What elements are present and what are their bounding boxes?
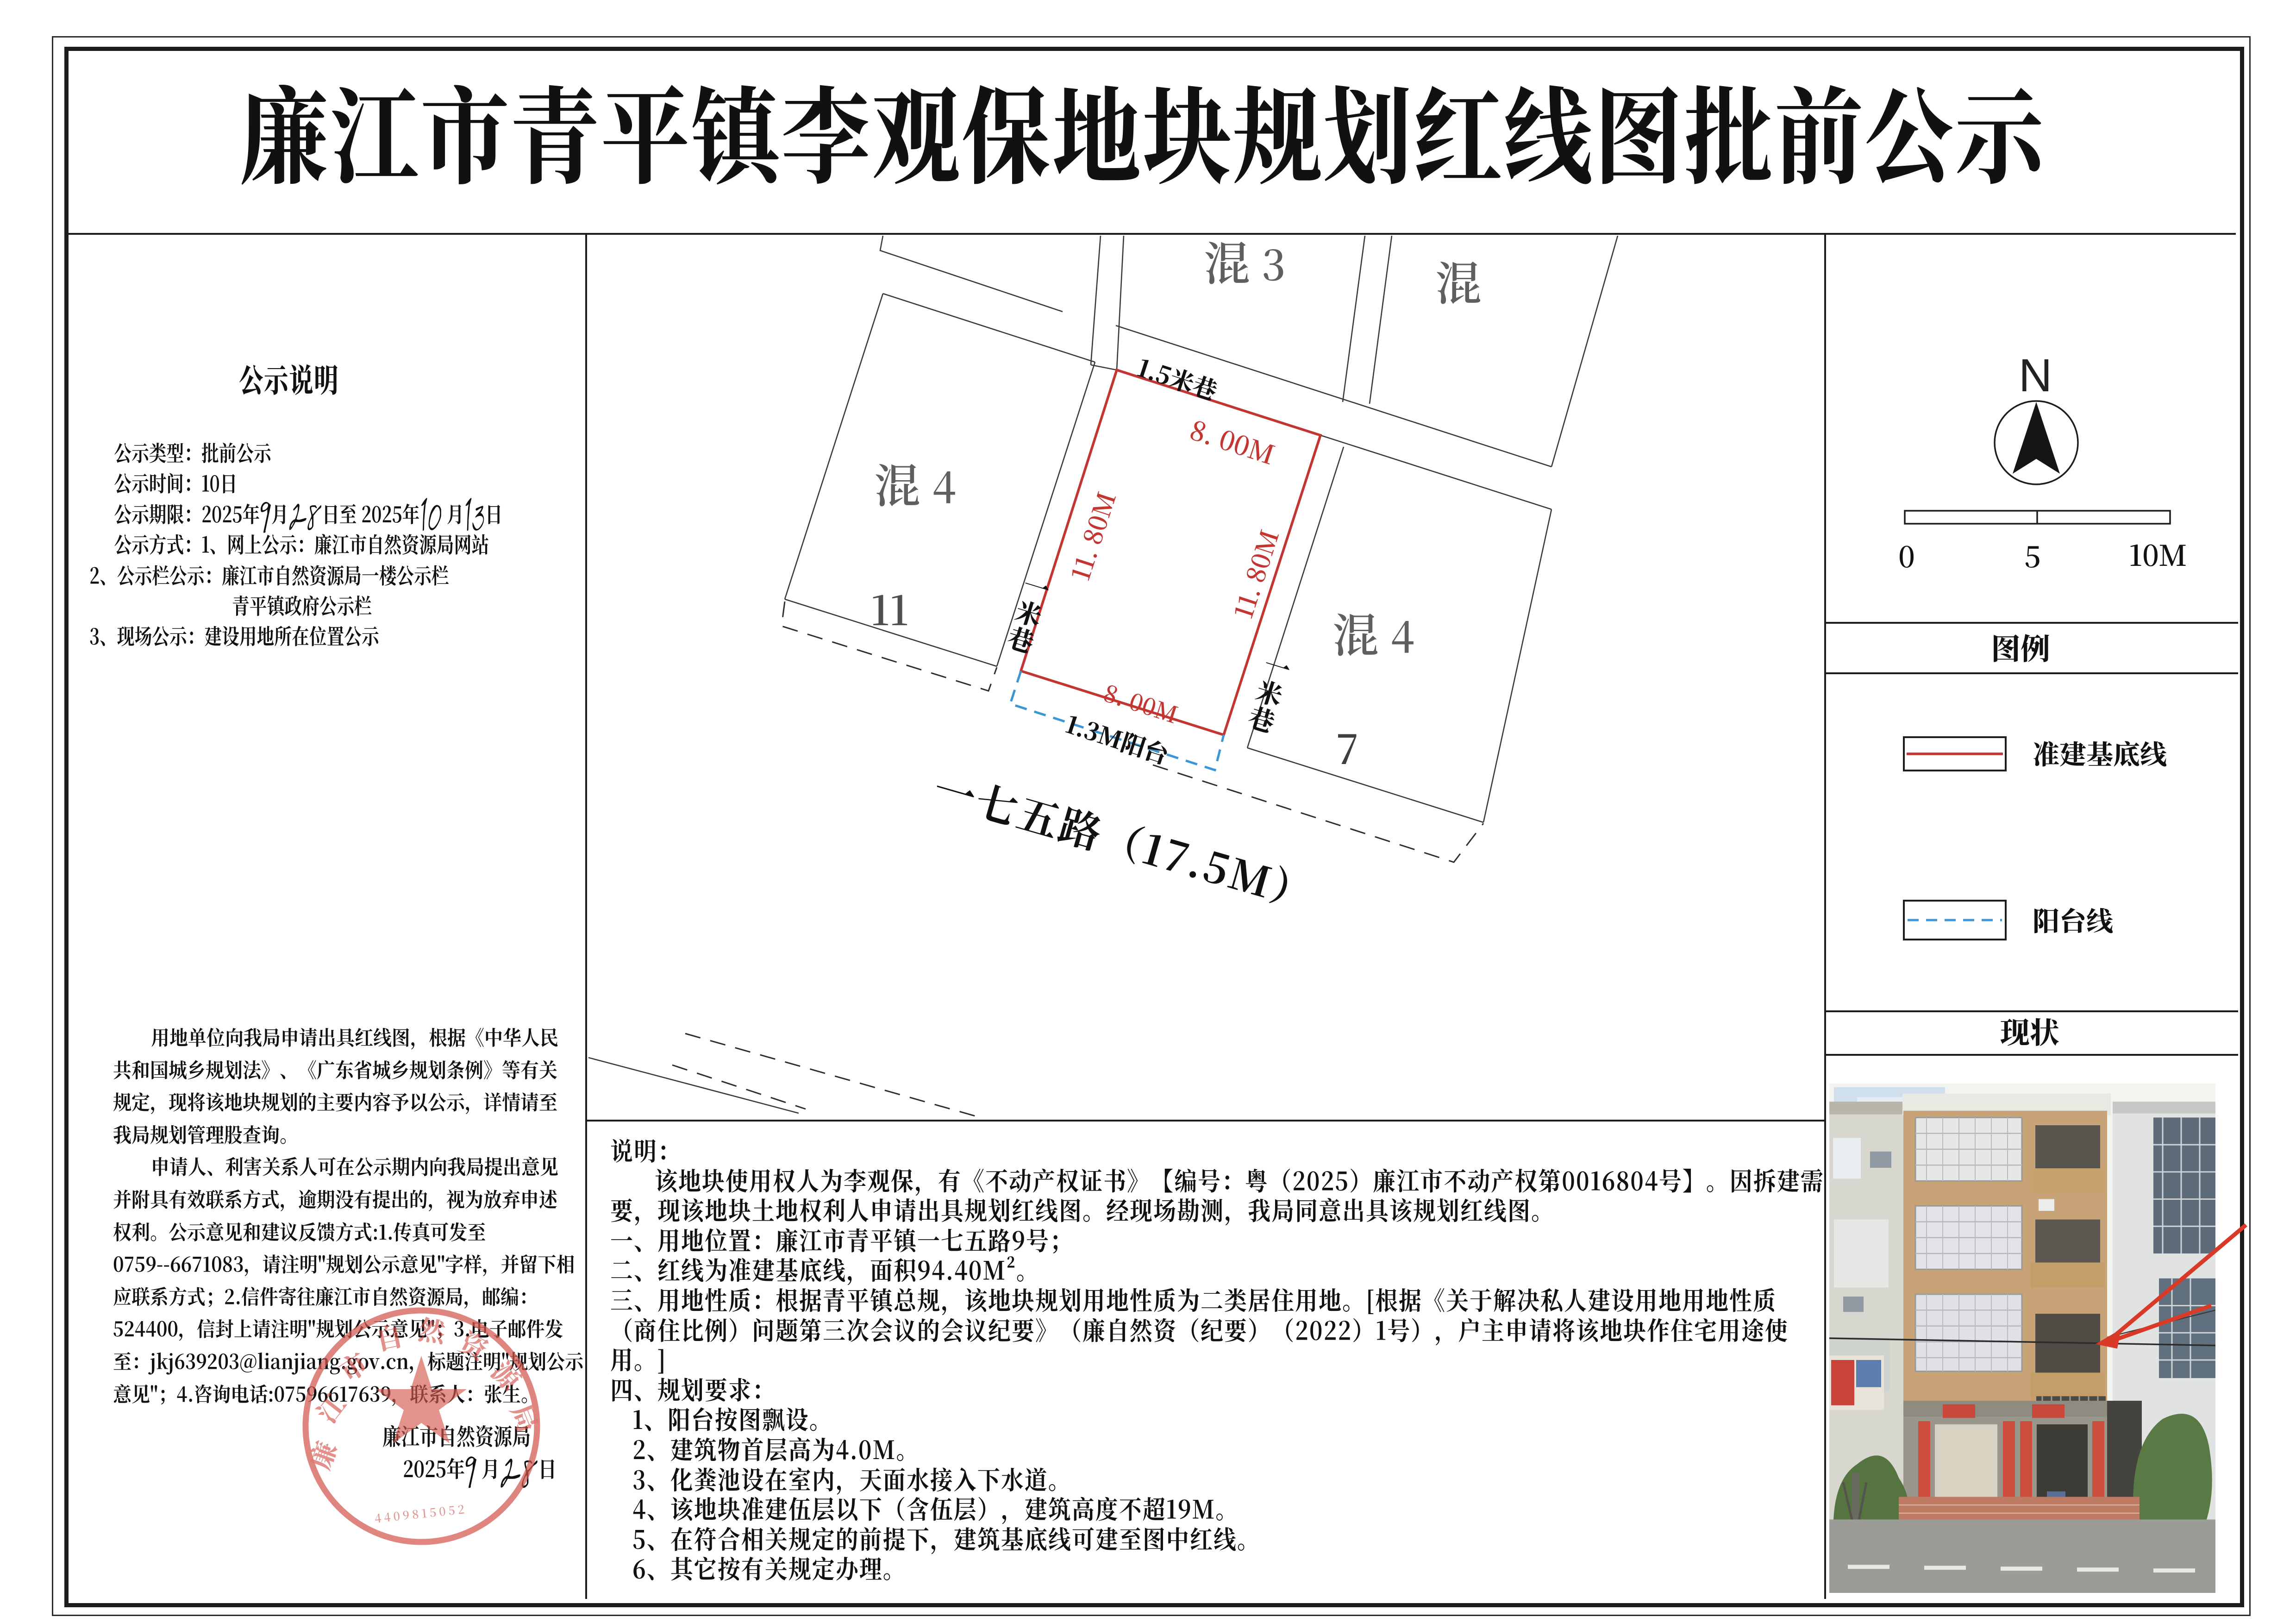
svg-text:N: N (2019, 350, 2052, 401)
svg-text:4409815052: 4409815052 (374, 1500, 468, 1527)
svg-text:阳台线: 阳台线 (2033, 900, 2113, 939)
svg-text:然: 然 (416, 1308, 448, 1350)
svg-text:自: 自 (372, 1314, 406, 1358)
svg-text:廉: 廉 (299, 1435, 344, 1474)
svg-text:图例: 图例 (1991, 626, 2050, 668)
svg-text:混 4: 混 4 (1333, 599, 1414, 665)
svg-text:现状: 现状 (2000, 1009, 2059, 1052)
svg-text:巷: 巷 (1244, 697, 1280, 740)
svg-text:5: 5 (2024, 534, 2041, 576)
svg-text:混 3: 混 3 (1204, 236, 1286, 294)
svg-text:0: 0 (1898, 534, 1915, 576)
svg-text:准建基底线: 准建基底线 (2033, 733, 2167, 772)
svg-text:资: 资 (453, 1321, 495, 1367)
svg-text:10M: 10M (2129, 533, 2187, 574)
svg-text:混: 混 (1435, 247, 1482, 313)
svg-text:源: 源 (484, 1352, 531, 1397)
svg-text:11. 80M: 11. 80M (1061, 487, 1123, 585)
svg-text:一七五路（17.5M）: 一七五路（17.5M） (927, 756, 1323, 922)
svg-text:1.5米巷: 1.5米巷 (1133, 349, 1222, 407)
svg-text:7: 7 (1336, 718, 1359, 776)
svg-text:混 4: 混 4 (874, 449, 956, 516)
svg-text:11: 11 (870, 579, 908, 637)
svg-text:巷: 巷 (1003, 618, 1039, 661)
